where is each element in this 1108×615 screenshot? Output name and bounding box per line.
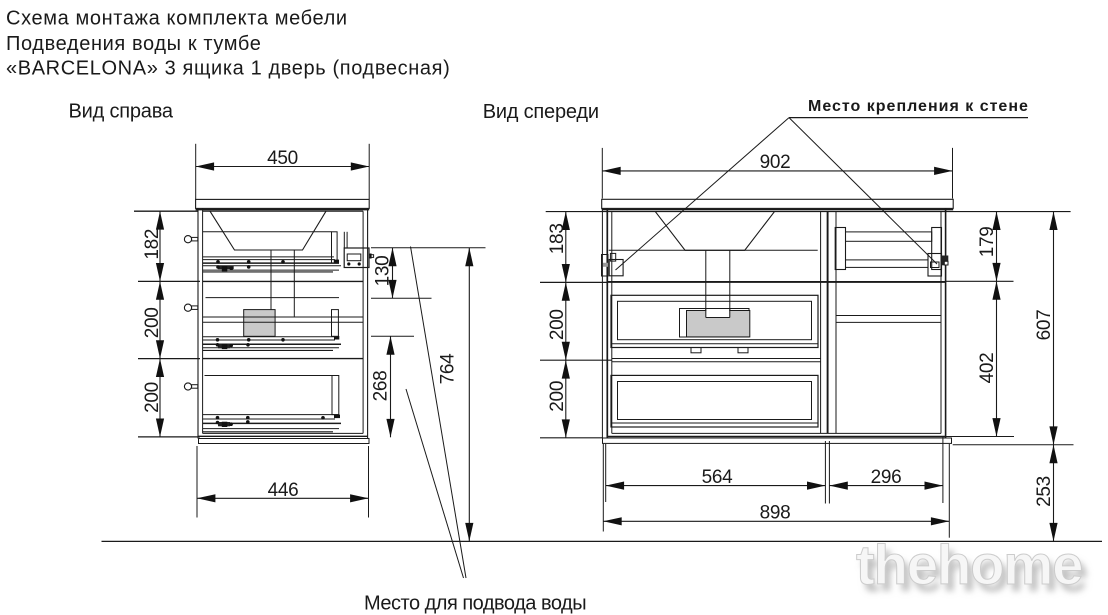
- svg-text:«BARCELONA» 3 ящика 1 дверь (п: «BARCELONA» 3 ящика 1 дверь (подвесная): [6, 58, 450, 80]
- svg-text:764: 764: [438, 353, 459, 385]
- svg-text:200: 200: [547, 309, 568, 340]
- svg-text:200: 200: [142, 307, 163, 338]
- svg-text:898: 898: [760, 502, 791, 523]
- svg-text:183: 183: [547, 223, 568, 254]
- svg-text:Подведения воды к тумбе: Подведения воды к тумбе: [6, 33, 262, 55]
- svg-text:268: 268: [370, 371, 391, 402]
- svg-text:130: 130: [372, 256, 393, 287]
- svg-text:Схема монтажа комплекта мебели: Схема монтажа комплекта мебели: [6, 8, 348, 30]
- svg-text:182: 182: [142, 229, 163, 260]
- svg-text:253: 253: [1034, 476, 1055, 507]
- svg-text:902: 902: [760, 152, 791, 173]
- svg-text:Место для подвода воды: Место для подвода воды: [364, 593, 586, 615]
- svg-text:296: 296: [871, 467, 902, 488]
- svg-text:450: 450: [267, 148, 298, 169]
- svg-text:402: 402: [977, 353, 998, 384]
- svg-text:607: 607: [1034, 310, 1055, 341]
- svg-text:446: 446: [268, 480, 299, 501]
- svg-text:thehome: thehome: [856, 533, 1082, 596]
- svg-text:Место крепления к стене: Место крепления к стене: [808, 98, 1029, 115]
- svg-text:200: 200: [142, 382, 163, 413]
- svg-text:Вид справа: Вид справа: [69, 101, 174, 123]
- svg-text:200: 200: [547, 381, 568, 412]
- svg-text:179: 179: [977, 226, 998, 257]
- svg-text:Вид спереди: Вид спереди: [483, 101, 599, 123]
- svg-text:564: 564: [702, 467, 734, 488]
